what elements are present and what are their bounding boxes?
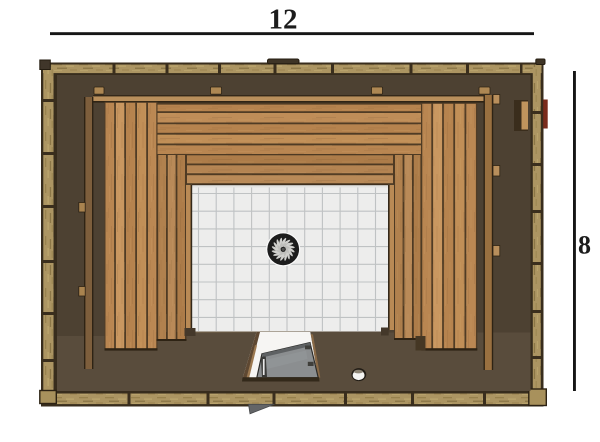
svg-text:12: 12 (269, 4, 298, 36)
svg-text:8: 8 (578, 231, 591, 260)
